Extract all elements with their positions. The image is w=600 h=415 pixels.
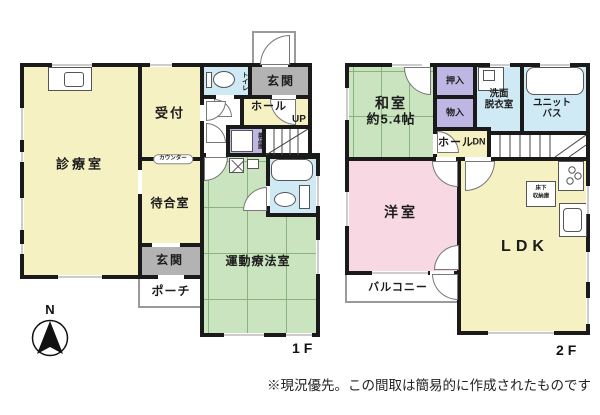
floor-label-1f: 1F <box>292 340 316 356</box>
stairs-down-label: DN <box>473 138 486 147</box>
window <box>490 63 510 67</box>
toilet-bowl-icon <box>213 71 235 88</box>
north-label: N <box>45 303 54 316</box>
room-label-clinic: 診療室 <box>56 158 104 171</box>
window <box>345 88 349 120</box>
stairs-1f-steps <box>266 129 308 155</box>
window <box>316 176 320 206</box>
window <box>586 252 590 282</box>
stairs-up-label: UP <box>292 115 306 125</box>
medicine-cabinet-icon <box>231 130 253 152</box>
bath-counter-icon <box>299 185 310 209</box>
footnote: ※現況優先。この間取は簡易的に作成されたものです <box>267 374 591 394</box>
room-label-porch: ポーチ <box>151 285 190 297</box>
window <box>488 331 554 335</box>
window <box>224 333 264 337</box>
floor-label-2f: 2F <box>556 342 580 358</box>
door-gap <box>152 243 180 247</box>
room-label-waiting: 待合室 <box>150 197 189 209</box>
laundry-sink-icon <box>247 159 259 169</box>
washer-drum-icon <box>483 70 495 81</box>
room-label-exercise-therapy: 運動療法室 <box>225 255 290 267</box>
window <box>150 63 172 67</box>
room-label-entrance-clinic: 玄関 <box>267 75 295 87</box>
room-label-hall-2f: ホール <box>438 138 474 149</box>
underfloor-label-2: 収納庫 <box>533 194 550 200</box>
window <box>58 275 102 279</box>
room-label-unit-bath-2: バス <box>542 109 561 119</box>
room-label-entrance-residence: 玄関 <box>156 254 184 266</box>
window <box>20 108 24 140</box>
window <box>586 186 590 214</box>
window <box>20 244 24 254</box>
washer-icon-1f <box>229 158 244 173</box>
stove-burners-icon <box>558 161 584 191</box>
window <box>586 298 590 324</box>
room-label-japanese-size: 約5.4帖 <box>366 113 415 126</box>
room-label-medicine-storage: 薬品庫 <box>256 133 262 150</box>
door-gap <box>138 170 142 194</box>
stairs-2f-steps <box>491 135 586 157</box>
washbasin-icon-1f <box>274 192 296 207</box>
counter-label: カウンター <box>153 154 193 164</box>
bathtub-icon-1f <box>271 159 313 181</box>
toilet-tank-icon <box>206 72 212 88</box>
compass: N <box>26 303 74 357</box>
room-label-hall-1f: ホール <box>251 102 287 113</box>
window <box>345 192 349 226</box>
room-label-unit-bath-1: ユニット <box>533 98 571 108</box>
kitchen-sink-basin-icon <box>563 208 582 232</box>
room-label-western: 洋室 <box>384 205 418 219</box>
desk-chair-icon <box>64 72 84 87</box>
room-label-balcony: バルコニー <box>368 283 428 294</box>
room-label-monoire: 物入 <box>446 109 464 118</box>
room-label-toilet: トイレ <box>240 71 247 91</box>
window <box>52 63 92 67</box>
room-label-washroom-2: 脱衣室 <box>485 100 514 110</box>
window <box>372 271 428 275</box>
room-label-ldk: LDK <box>501 239 549 255</box>
window <box>20 198 24 230</box>
floorplan-canvas: 診療室 受付 カウンター 待合室 玄関 ポーチ トイレ 玄関 ホール UP 薬品… <box>0 0 600 415</box>
window <box>286 333 312 337</box>
window <box>20 152 24 162</box>
window <box>316 240 320 274</box>
door-gap <box>216 95 234 99</box>
room-label-japanese: 和室 <box>375 96 407 110</box>
door-gap <box>158 275 184 279</box>
compass-icon <box>30 317 70 357</box>
window <box>540 63 570 67</box>
door-gap <box>200 105 204 121</box>
underfloor-label-1: 床下 <box>535 186 546 192</box>
bathtub-icon-2f <box>526 67 584 95</box>
room-label-reception: 受付 <box>155 107 185 120</box>
room-label-oshiire: 押入 <box>446 77 464 86</box>
room-label-washroom-1: 洗面 <box>489 89 508 99</box>
